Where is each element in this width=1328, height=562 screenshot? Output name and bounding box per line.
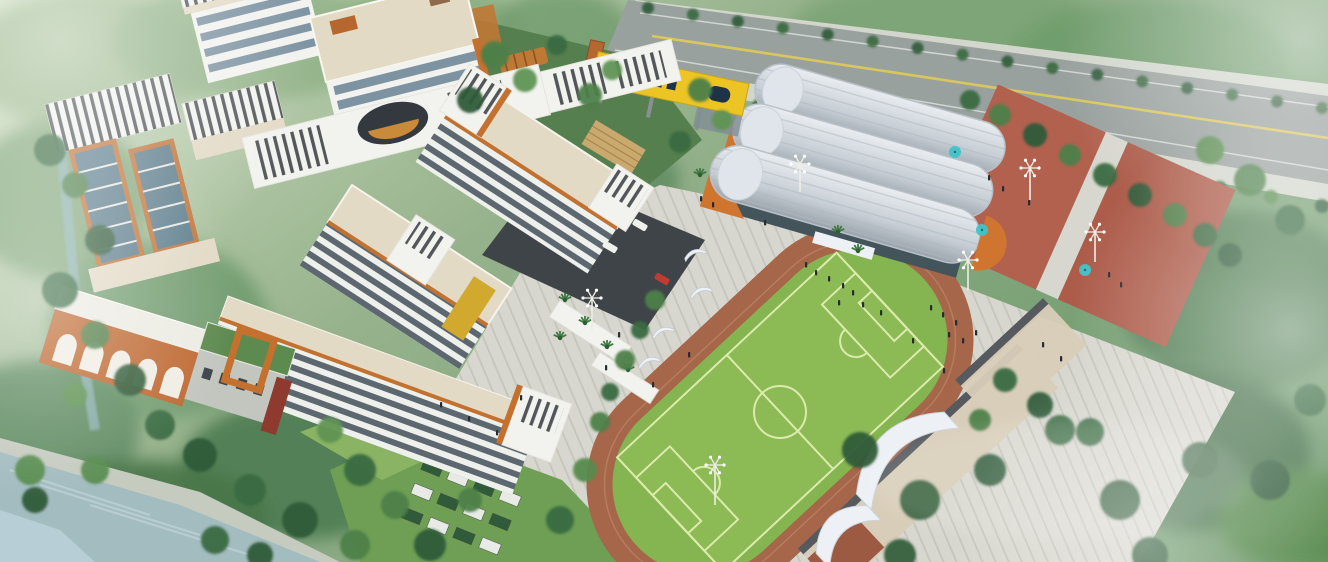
street-tree <box>867 35 879 47</box>
palm-crown <box>698 173 702 177</box>
tree <box>201 526 229 554</box>
tree <box>317 417 343 443</box>
street-tree <box>1046 62 1058 74</box>
lamp-bulb <box>971 266 974 269</box>
person <box>962 338 964 344</box>
lamp-bulb <box>803 170 806 173</box>
lamp-bulb <box>581 296 584 299</box>
person <box>764 220 766 226</box>
tree <box>547 35 567 55</box>
tree <box>414 529 446 561</box>
tree <box>481 41 509 69</box>
person <box>1028 200 1030 206</box>
person <box>912 338 914 344</box>
street-tree <box>912 42 924 54</box>
person <box>842 283 844 289</box>
tree <box>590 412 610 432</box>
person <box>862 302 864 308</box>
street-tree <box>687 9 699 21</box>
tree <box>645 290 665 310</box>
tree <box>573 458 597 482</box>
umbrella-center <box>954 151 956 153</box>
person <box>652 382 654 388</box>
person <box>943 368 945 374</box>
palm-crown <box>856 249 860 253</box>
street-tree <box>732 15 744 27</box>
palm-crown <box>605 345 609 349</box>
tree <box>960 90 980 110</box>
lamp-bulb <box>709 471 712 474</box>
person <box>618 332 620 338</box>
lamp-bulb <box>1037 166 1040 169</box>
person <box>468 416 470 422</box>
tree <box>457 87 483 113</box>
tree <box>578 83 602 107</box>
tree <box>989 104 1011 126</box>
lamp-bulb <box>586 304 589 307</box>
person <box>520 395 522 401</box>
lamp-bulb <box>709 456 712 459</box>
tree <box>842 432 878 468</box>
lamp-bulb <box>595 289 598 292</box>
lamp-bulb <box>1019 166 1022 169</box>
lamp-bulb <box>962 251 965 254</box>
tree <box>669 131 691 153</box>
person <box>700 196 702 202</box>
haze-streak <box>870 420 1250 540</box>
lamp-bulb <box>803 155 806 158</box>
person <box>988 175 990 181</box>
person <box>496 430 498 436</box>
street-tree <box>1001 55 1013 67</box>
person <box>942 312 944 318</box>
palm-crown <box>836 230 840 234</box>
person <box>930 305 932 311</box>
street-tree <box>642 2 654 14</box>
person <box>688 352 690 358</box>
palm-crown <box>583 321 587 325</box>
person <box>852 290 854 296</box>
lamp-bulb <box>704 463 707 466</box>
lamp-bulb <box>789 162 792 165</box>
lamp-bulb <box>1024 174 1027 177</box>
tree <box>631 321 649 339</box>
campus-aerial-scene <box>0 0 1328 562</box>
lamp-bulb <box>807 162 810 165</box>
person <box>828 276 830 282</box>
street-tree <box>777 22 789 34</box>
palm-crown <box>558 336 562 340</box>
person <box>712 202 714 208</box>
tree <box>340 530 370 560</box>
person <box>975 330 977 336</box>
lamp-bulb <box>722 463 725 466</box>
tree <box>458 488 482 512</box>
person <box>805 262 807 268</box>
lamp-bulb <box>794 155 797 158</box>
lamp-bulb <box>1033 174 1036 177</box>
tree <box>1059 144 1081 166</box>
tree <box>381 491 409 519</box>
person <box>815 270 817 276</box>
tree <box>1023 123 1047 147</box>
tree <box>601 383 619 401</box>
person <box>948 332 950 338</box>
tree <box>183 438 217 472</box>
street-tree <box>822 29 834 41</box>
person <box>1060 356 1062 362</box>
tree <box>282 502 318 538</box>
umbrella-center <box>981 229 983 231</box>
lamp-bulb <box>971 251 974 254</box>
lamp-bulb <box>718 456 721 459</box>
lamp-bulb <box>595 304 598 307</box>
street-tree <box>957 49 969 61</box>
person <box>880 310 882 316</box>
person <box>955 320 957 326</box>
tree <box>546 506 574 534</box>
person <box>605 365 607 371</box>
tree <box>712 110 732 130</box>
person <box>838 300 840 306</box>
person <box>1042 342 1044 348</box>
lamp-bulb <box>794 170 797 173</box>
tree <box>344 454 376 486</box>
lamp-bulb <box>1024 159 1027 162</box>
tree <box>615 350 635 370</box>
lamp-bulb <box>1084 230 1087 233</box>
tree <box>993 368 1017 392</box>
lamp-bulb <box>957 258 960 261</box>
lamp-bulb <box>1089 223 1092 226</box>
lamp-bulb <box>718 471 721 474</box>
person <box>440 402 442 408</box>
lamp-bulb <box>975 258 978 261</box>
lamp-bulb <box>599 296 602 299</box>
tree <box>602 60 622 80</box>
lamp-bulb <box>962 266 965 269</box>
palm-crown <box>563 298 567 302</box>
lamp-bulb <box>586 289 589 292</box>
campus-rendering <box>0 0 1328 562</box>
lamp-bulb <box>1033 159 1036 162</box>
tree <box>688 78 712 102</box>
person <box>1002 186 1004 192</box>
tree <box>513 68 537 92</box>
tree <box>234 474 266 506</box>
